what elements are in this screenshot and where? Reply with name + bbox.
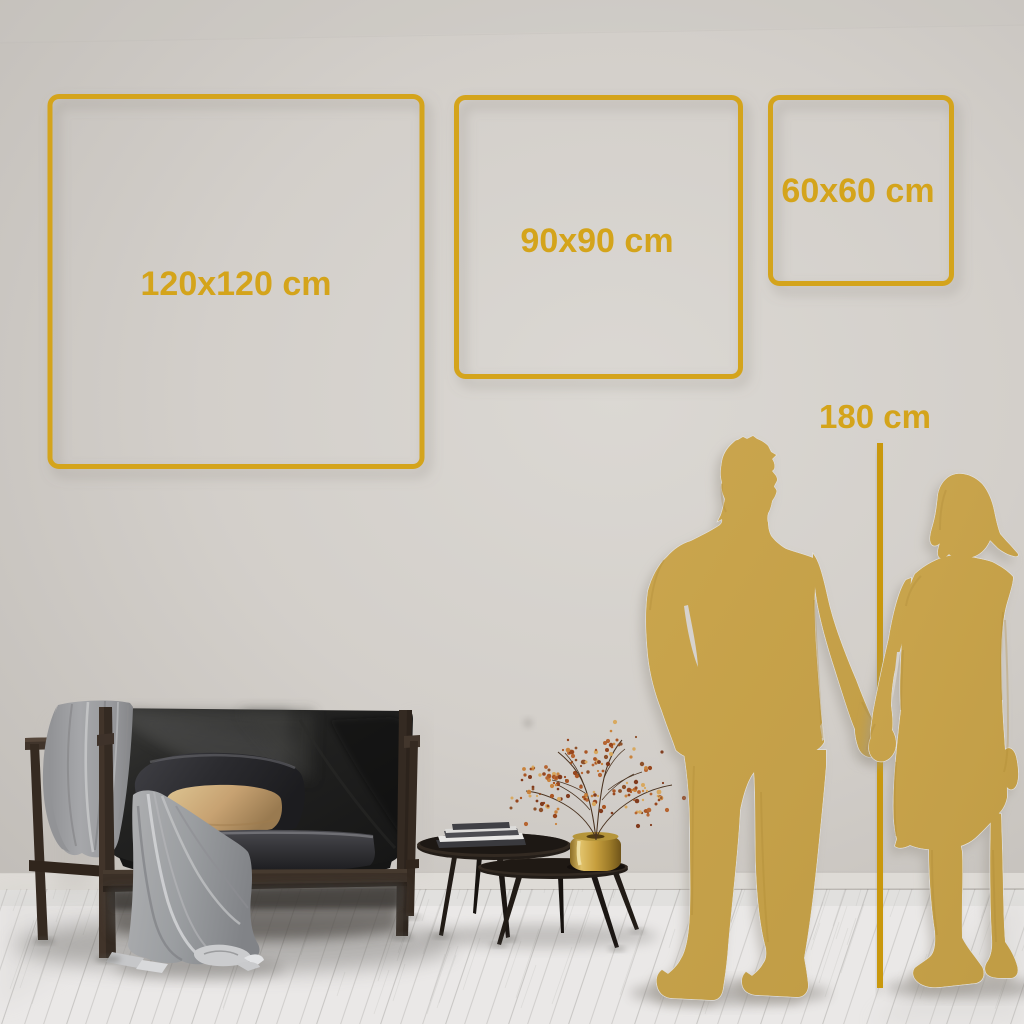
- svg-text:180 cm: 180 cm: [819, 398, 931, 435]
- svg-text:120x120 cm: 120x120 cm: [141, 265, 332, 303]
- svg-text:60x60 cm: 60x60 cm: [781, 172, 934, 210]
- svg-text:90x90 cm: 90x90 cm: [520, 222, 673, 260]
